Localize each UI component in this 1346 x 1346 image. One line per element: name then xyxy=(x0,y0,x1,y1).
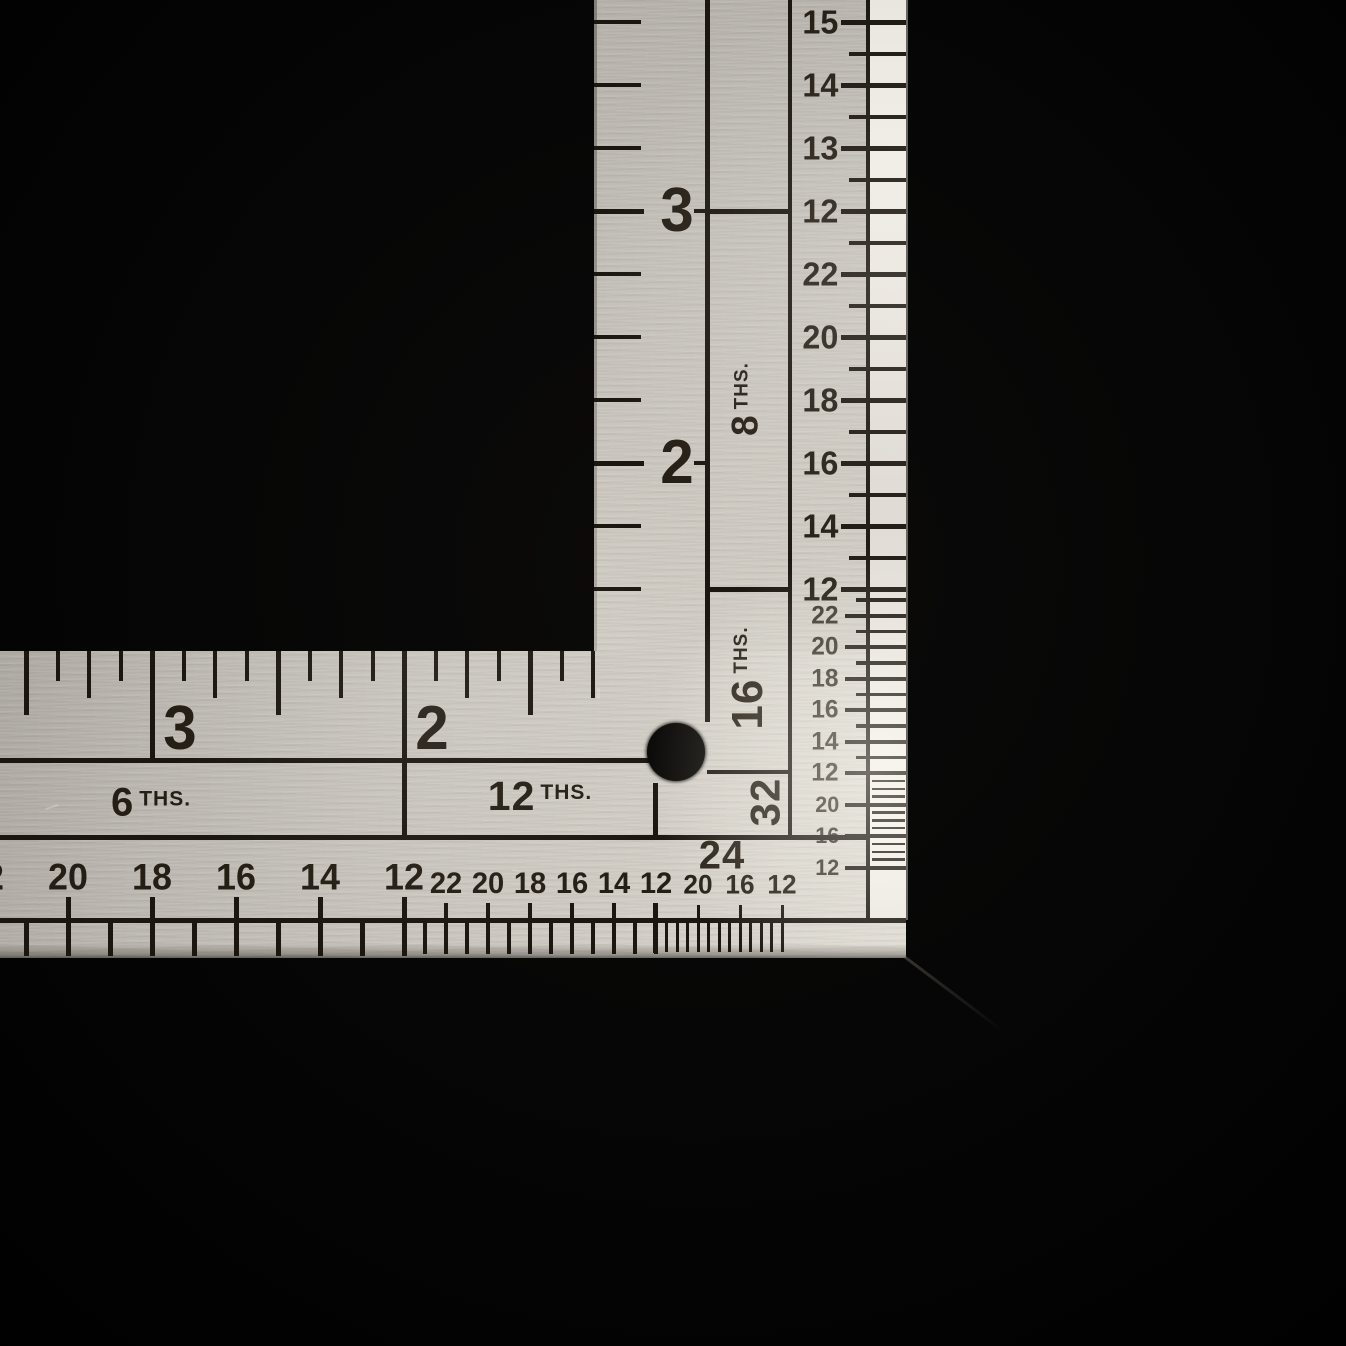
tick-mark xyxy=(856,693,906,697)
scale-number: 12 xyxy=(640,869,672,899)
tick-mark xyxy=(841,272,906,277)
inch-number: 3 xyxy=(660,180,693,242)
tick-mark xyxy=(760,920,763,952)
tick-mark xyxy=(856,724,906,728)
scale-suffix: THS. xyxy=(540,782,592,803)
scale-number: 12 xyxy=(811,761,838,786)
tick-mark xyxy=(594,587,641,591)
tick-mark xyxy=(841,83,906,88)
scale-number: 14 xyxy=(598,869,630,899)
tick-mark xyxy=(872,795,905,798)
tick-mark xyxy=(841,398,906,403)
tick-mark xyxy=(612,920,616,954)
scale-number: 22 xyxy=(430,869,462,899)
scale-number: 20 xyxy=(683,872,712,899)
tick-mark xyxy=(594,20,641,24)
tick-mark xyxy=(841,587,906,592)
tick-mark xyxy=(56,651,60,681)
scale-number: 18 xyxy=(514,869,546,899)
tick-mark xyxy=(849,52,906,56)
tick-mark xyxy=(150,920,155,956)
scale-number: 20 xyxy=(811,635,838,660)
scale-number: 12 xyxy=(815,857,839,879)
tick-mark xyxy=(465,651,469,698)
tick-mark xyxy=(653,783,658,838)
tick-mark xyxy=(849,304,906,308)
scale-number: 20 xyxy=(803,321,839,354)
scale-number: 20 xyxy=(815,794,839,816)
scale-denominator: 16 xyxy=(731,679,765,730)
scale-number: 16 xyxy=(556,869,588,899)
scale-number: 14 xyxy=(300,859,340,896)
tick-mark xyxy=(770,920,773,952)
hang-hole xyxy=(647,723,705,781)
tick-mark xyxy=(707,209,790,214)
tick-mark xyxy=(841,524,906,529)
tick-mark xyxy=(213,651,217,698)
tick-mark xyxy=(676,920,679,952)
tick-mark xyxy=(841,20,906,25)
photo-canvas: 8 THS. 16 THS. 32 6 THS. 12 THS. 24 3215… xyxy=(0,0,1346,1346)
tick-mark xyxy=(0,918,906,923)
tick-mark xyxy=(841,146,906,151)
tick-mark xyxy=(872,819,905,822)
sixths-scale-label: 6 THS. xyxy=(111,787,191,818)
twelfths-scale-label: 12 THS. xyxy=(488,781,592,813)
tick-mark xyxy=(591,920,595,954)
tick-mark xyxy=(845,740,906,744)
tick-mark xyxy=(849,367,906,371)
tick-mark xyxy=(849,556,906,560)
tick-mark xyxy=(594,461,644,466)
tick-mark xyxy=(856,661,906,665)
tick-mark xyxy=(87,651,91,698)
tick-mark xyxy=(0,835,868,840)
tick-mark xyxy=(872,780,905,783)
scale-number: 16 xyxy=(725,872,754,899)
tick-mark xyxy=(594,83,641,87)
scale-number: 18 xyxy=(132,859,172,896)
scale-denominator: 32 xyxy=(750,778,783,827)
tick-mark xyxy=(570,920,574,954)
scale-number: 22 xyxy=(803,258,839,291)
scale-number: 16 xyxy=(803,447,839,480)
tick-mark xyxy=(594,335,641,339)
scale-number: 22 xyxy=(811,603,838,628)
thirtyseconds-scale-label: 32 xyxy=(750,778,783,827)
tick-mark xyxy=(739,920,742,952)
inch-number: 2 xyxy=(660,432,693,494)
tick-mark xyxy=(528,651,533,715)
scale-number: 16 xyxy=(811,698,838,723)
tick-mark xyxy=(594,209,644,214)
tick-mark xyxy=(849,430,906,434)
scratch-mark xyxy=(597,688,600,699)
tick-mark xyxy=(849,178,906,182)
tick-mark xyxy=(423,920,427,954)
scale-suffix: THS. xyxy=(733,362,752,409)
tick-mark xyxy=(371,651,375,681)
tick-mark xyxy=(549,920,553,954)
tick-mark xyxy=(845,803,906,807)
tick-mark xyxy=(591,651,595,698)
tick-mark xyxy=(856,598,906,602)
scale-number: 12 xyxy=(803,195,839,228)
tick-mark xyxy=(276,920,281,956)
tick-mark xyxy=(841,209,906,214)
tick-mark xyxy=(465,920,469,954)
inch-number: 3 xyxy=(163,698,196,760)
scale-denominator: 12 xyxy=(488,781,536,813)
tick-mark xyxy=(444,920,448,954)
scale-suffix: THS. xyxy=(139,788,191,809)
tick-mark xyxy=(402,651,407,837)
scale-number: 13 xyxy=(803,132,839,165)
tick-mark xyxy=(150,651,155,760)
tick-mark xyxy=(486,920,490,954)
tick-mark xyxy=(594,398,641,402)
scale-number: 22 xyxy=(0,859,4,896)
scale-number: 15 xyxy=(803,6,839,39)
tick-mark xyxy=(841,335,906,340)
tick-mark xyxy=(633,920,637,954)
tick-mark xyxy=(849,115,906,119)
tick-mark xyxy=(845,645,906,649)
tick-mark xyxy=(728,920,731,952)
tick-mark xyxy=(872,811,905,814)
tick-mark xyxy=(402,920,407,956)
tick-mark xyxy=(707,770,790,774)
twentyfourths-scale-label: 24 xyxy=(699,840,746,871)
tick-mark xyxy=(653,903,658,953)
scale-suffix: THS. xyxy=(732,626,751,673)
tick-mark xyxy=(845,708,906,712)
tick-mark xyxy=(0,758,651,763)
scale-number: 18 xyxy=(803,384,839,417)
tick-mark xyxy=(707,920,710,952)
scale-number: 14 xyxy=(811,729,838,754)
scale-number: 12 xyxy=(767,872,796,899)
tick-mark xyxy=(119,651,123,681)
sixteenths-scale-label: 16 THS. xyxy=(731,626,765,729)
scale-number: 14 xyxy=(803,510,839,543)
tick-mark xyxy=(872,851,905,854)
tick-mark xyxy=(560,651,564,681)
tick-mark xyxy=(705,0,710,722)
tick-mark xyxy=(339,651,343,698)
eighths-scale-label: 8 THS. xyxy=(732,362,761,436)
tick-mark xyxy=(434,651,438,681)
tick-mark xyxy=(686,920,689,952)
scale-denominator: 24 xyxy=(699,840,746,871)
scale-denominator: 6 xyxy=(111,787,134,818)
tick-mark xyxy=(594,272,641,276)
tick-mark xyxy=(856,630,906,634)
tick-mark xyxy=(866,0,870,920)
tick-mark xyxy=(665,920,668,952)
tick-mark xyxy=(849,493,906,497)
tick-mark xyxy=(856,756,906,760)
tick-mark xyxy=(788,0,792,835)
tick-mark xyxy=(182,651,186,681)
tick-mark xyxy=(872,858,905,861)
tick-mark xyxy=(528,920,532,954)
tick-mark xyxy=(845,677,906,681)
tick-mark xyxy=(718,920,721,952)
scale-denominator: 8 xyxy=(732,414,761,436)
tick-mark xyxy=(872,843,905,846)
inch-number: 2 xyxy=(415,698,448,760)
scale-number: 20 xyxy=(48,859,88,896)
tick-mark xyxy=(872,827,905,830)
tick-mark xyxy=(781,920,784,952)
tick-mark xyxy=(845,771,906,775)
scale-number: 14 xyxy=(803,69,839,102)
tick-mark xyxy=(24,920,29,956)
tick-mark xyxy=(276,651,281,715)
tick-mark xyxy=(697,920,700,952)
tick-mark xyxy=(507,920,511,954)
tick-mark xyxy=(66,920,71,956)
tick-mark xyxy=(845,614,906,618)
tick-mark xyxy=(845,866,906,870)
tick-mark xyxy=(749,920,752,952)
tick-mark xyxy=(24,651,29,715)
scale-number: 20 xyxy=(472,869,504,899)
tick-mark xyxy=(841,461,906,466)
scale-number: 12 xyxy=(384,859,424,896)
tick-mark xyxy=(594,524,641,528)
scale-number: 16 xyxy=(216,859,256,896)
tick-mark xyxy=(497,651,501,681)
tick-mark xyxy=(594,146,641,150)
tick-mark xyxy=(245,651,249,681)
tick-mark xyxy=(707,587,790,592)
tick-mark xyxy=(318,920,323,956)
tick-mark xyxy=(108,920,113,956)
tick-mark xyxy=(360,920,365,956)
tick-mark xyxy=(849,241,906,245)
tick-mark xyxy=(234,920,239,956)
etched-graduations: 8 THS. 16 THS. 32 6 THS. 12 THS. 24 3215… xyxy=(0,0,1346,1346)
tick-mark xyxy=(308,651,312,681)
tick-mark xyxy=(192,920,197,956)
scale-number: 18 xyxy=(811,666,838,691)
tick-mark xyxy=(872,788,905,791)
